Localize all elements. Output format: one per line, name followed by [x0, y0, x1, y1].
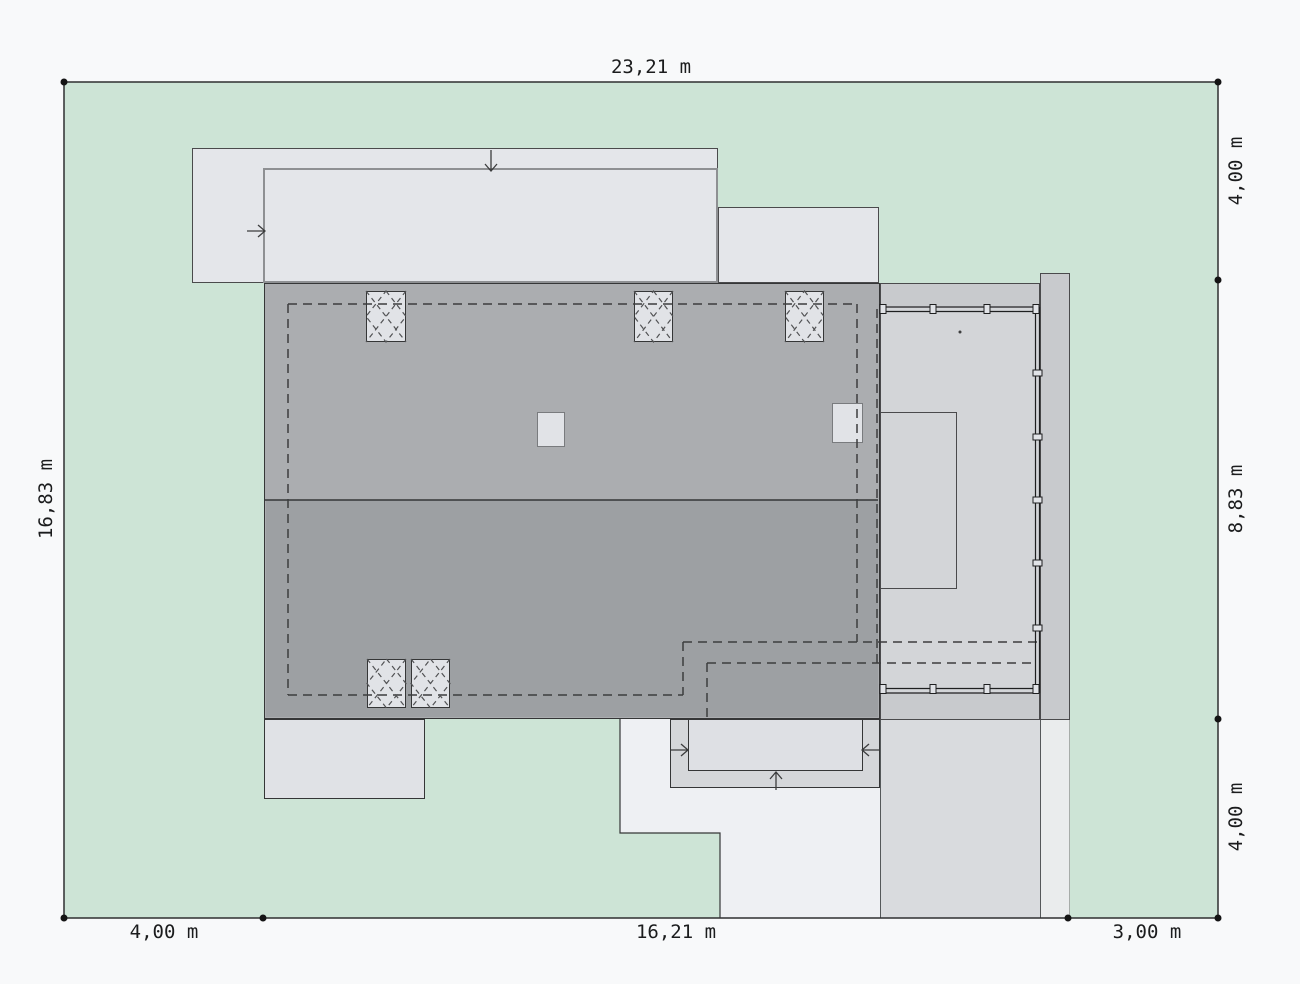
walkway-lower	[720, 833, 880, 918]
dim-right-bottom: 4,00 m	[1225, 742, 1247, 892]
chimney-top-1	[366, 291, 406, 342]
driveway	[880, 720, 1041, 918]
chimney-bottom-1	[367, 659, 406, 708]
dim-top: 23,21 m	[576, 56, 726, 78]
dim-bottom-right: 3,00 m	[1072, 921, 1222, 943]
porch-left	[264, 719, 425, 799]
dim-bottom-middle: 16,21 m	[601, 921, 751, 943]
side-strip	[1041, 720, 1070, 918]
chimney-top-2	[634, 291, 673, 342]
roof-step-right	[718, 207, 879, 283]
entry-porch-inner	[688, 719, 863, 771]
dim-right-top: 4,00 m	[1225, 96, 1247, 246]
chimney-bottom-2	[411, 659, 450, 708]
garage-inner-roof-edge	[263, 168, 718, 283]
site-plan: 23,21 m 16,83 m 4,00 m 8,83 m 4,00 m 4,0…	[0, 0, 1300, 984]
dim-bottom-left: 4,00 m	[89, 921, 239, 943]
chimney-top-3	[785, 291, 824, 342]
roof-vent-1	[537, 412, 565, 447]
dim-right-middle: 8,83 m	[1225, 424, 1247, 574]
roof-vent-2	[832, 403, 863, 443]
dim-left: 16,83 m	[35, 424, 57, 574]
main-roof-lower-slope	[266, 500, 878, 717]
terrace-column-strip	[1040, 273, 1070, 720]
terrace-step	[880, 412, 957, 589]
